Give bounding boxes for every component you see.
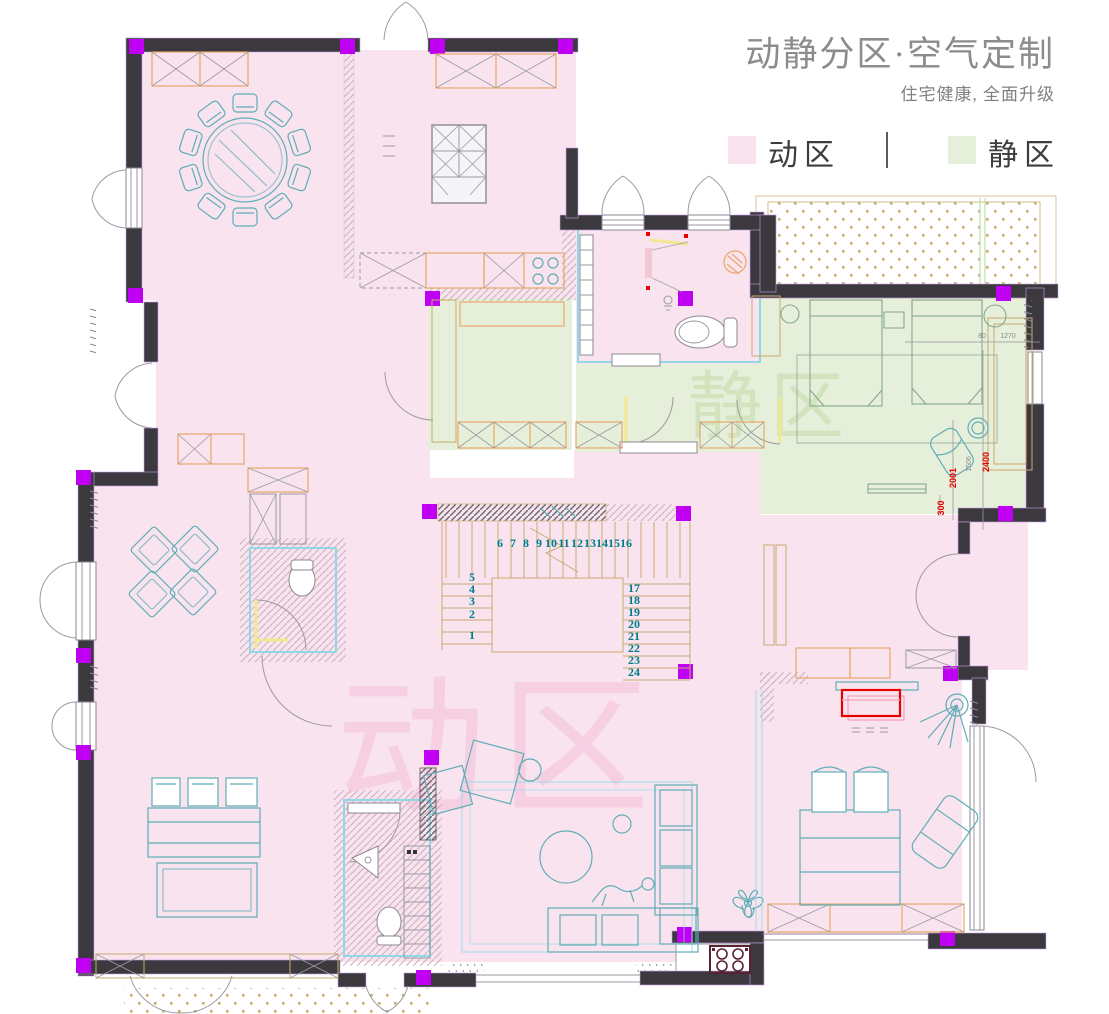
svg-text:15: 15 <box>608 536 620 550</box>
svg-text:24: 24 <box>628 665 640 679</box>
svg-text:1: 1 <box>469 628 475 642</box>
svg-text:14: 14 <box>596 536 608 550</box>
floor-plan-page: 静区 动区 <box>0 0 1109 1014</box>
page-title: 动静分区·空气定制 <box>745 26 1055 77</box>
svg-text:9: 9 <box>536 536 542 550</box>
legend: 动区 静区 <box>720 130 1060 174</box>
legend-divider <box>886 132 888 168</box>
svg-text:2001: 2001 <box>948 468 958 488</box>
active-zone-label: 动区 <box>768 130 840 174</box>
svg-text:7: 7 <box>510 536 516 550</box>
svg-text:2: 2 <box>469 607 475 621</box>
active-zone-swatch <box>728 136 756 164</box>
svg-text:6: 6 <box>497 536 503 550</box>
svg-text:3: 3 <box>469 594 475 608</box>
svg-text:16: 16 <box>620 536 632 550</box>
door-threshold <box>348 803 400 813</box>
quiet-zone-swatch <box>948 136 976 164</box>
svg-text:10: 10 <box>545 536 557 550</box>
quiet-zone-label: 静区 <box>988 130 1060 174</box>
quiet-zone-watermark: 静区 <box>688 367 852 449</box>
svg-text:1506: 1506 <box>966 456 973 472</box>
svg-text:8: 8 <box>523 536 529 550</box>
svg-text:11: 11 <box>558 536 569 550</box>
svg-text:12: 12 <box>571 536 583 550</box>
svg-text:80: 80 <box>978 333 986 340</box>
page-subtitle: 住宅健康, 全面升级 <box>901 80 1056 105</box>
svg-text:2400: 2400 <box>981 452 991 472</box>
door-threshold <box>620 442 697 453</box>
svg-text:300: 300 <box>936 500 946 515</box>
svg-text:1270: 1270 <box>1000 333 1016 340</box>
svg-text:13: 13 <box>584 536 596 550</box>
door-threshold <box>612 354 660 366</box>
